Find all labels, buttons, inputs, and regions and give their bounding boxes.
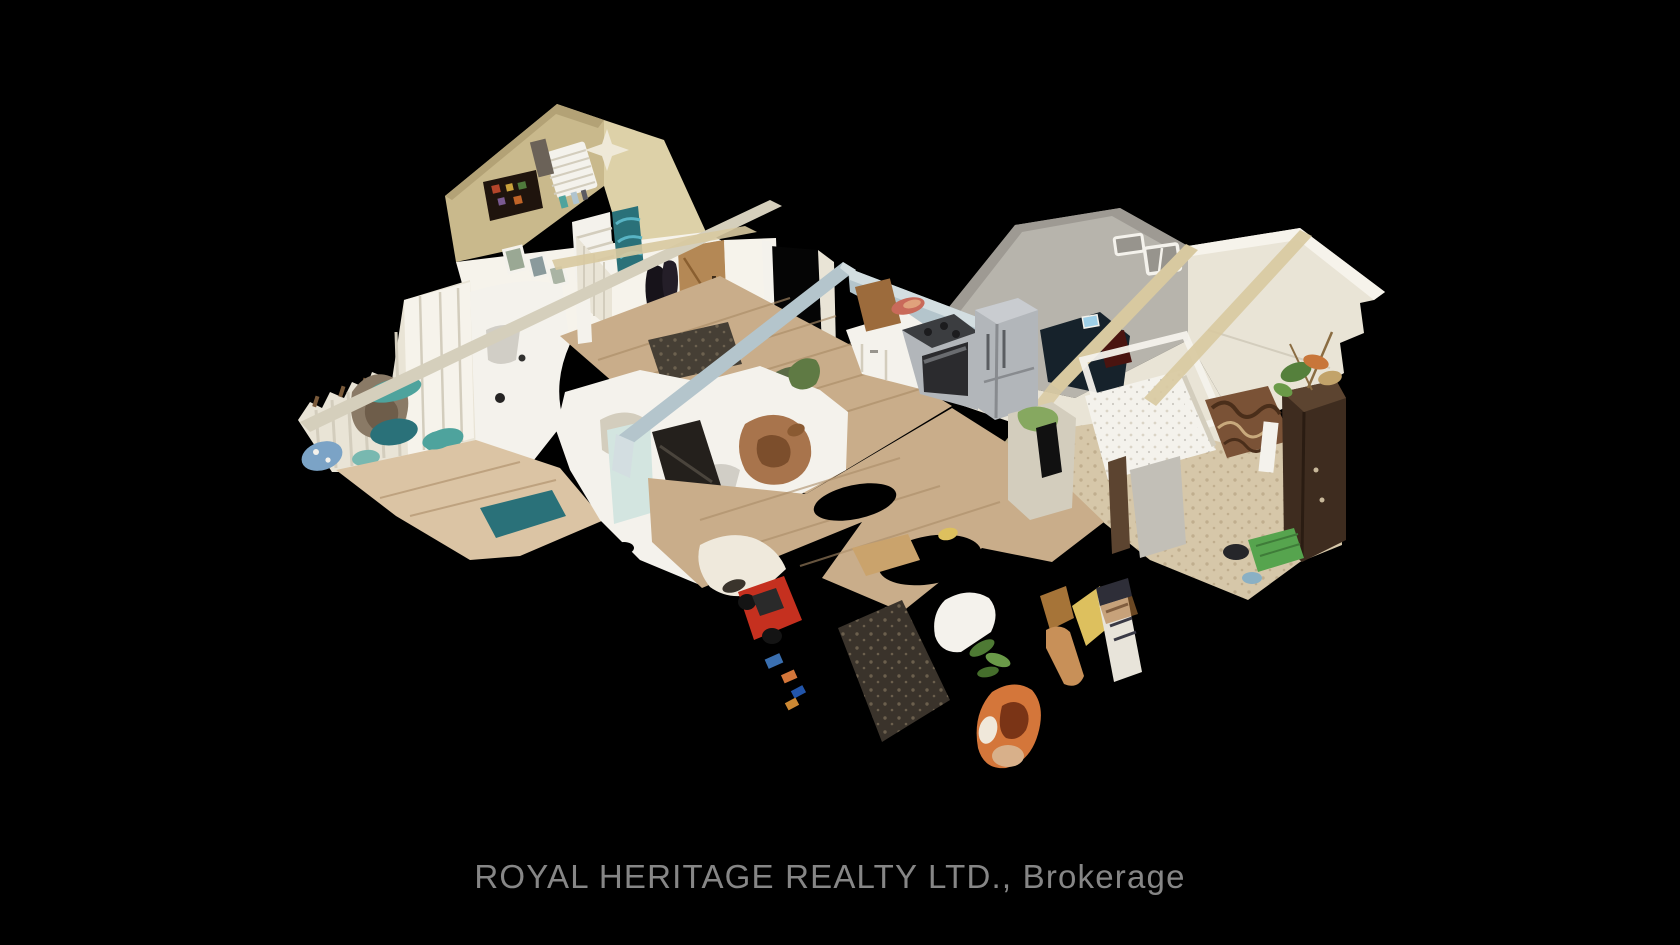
pillow-floral-dot <box>325 457 330 462</box>
sofa-dog <box>739 415 811 485</box>
burner <box>952 330 960 338</box>
scan-hole <box>495 393 505 403</box>
refrigerator <box>975 298 1038 420</box>
pillow-floral-dot <box>313 449 319 455</box>
burner <box>924 328 932 336</box>
screenshot-canvas <box>0 0 1680 945</box>
wardrobe-knob <box>1314 468 1319 473</box>
laptop-screen <box>1082 315 1099 328</box>
scan-hole <box>614 542 634 554</box>
hall-post <box>576 298 592 344</box>
cabinet-handle <box>870 350 878 353</box>
scan-hole <box>519 355 526 362</box>
toy-fragment <box>1242 572 1262 584</box>
brokerage-watermark: ROYAL HERITAGE REALTY LTD., Brokerage <box>0 858 1660 896</box>
fridge-door-seam <box>996 324 997 418</box>
toy-wheel <box>762 628 782 644</box>
beam-end-drop <box>612 434 634 478</box>
tan-fragment <box>992 745 1024 767</box>
dollhouse-3d-view <box>0 0 1680 945</box>
wardrobe-knob-2 <box>1320 498 1325 503</box>
burner <box>940 322 948 330</box>
family-room-window-1 <box>1114 234 1144 255</box>
dark-shoes <box>1223 544 1249 560</box>
wardrobe-door-seam <box>1302 412 1304 558</box>
gray-torn-wall <box>1130 456 1186 558</box>
